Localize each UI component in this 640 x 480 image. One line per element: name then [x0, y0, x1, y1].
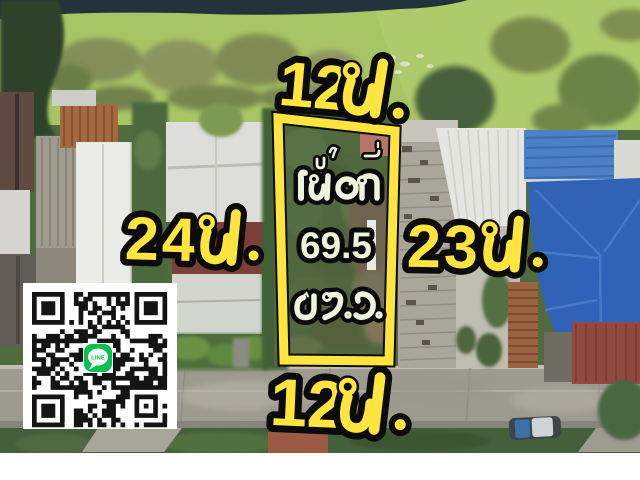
svg-text:69.5: 69.5 — [300, 225, 372, 266]
svg-text:LINE: LINE — [91, 355, 105, 362]
svg-text:23: 23 — [406, 212, 481, 281]
svg-text:24: 24 — [124, 204, 200, 274]
